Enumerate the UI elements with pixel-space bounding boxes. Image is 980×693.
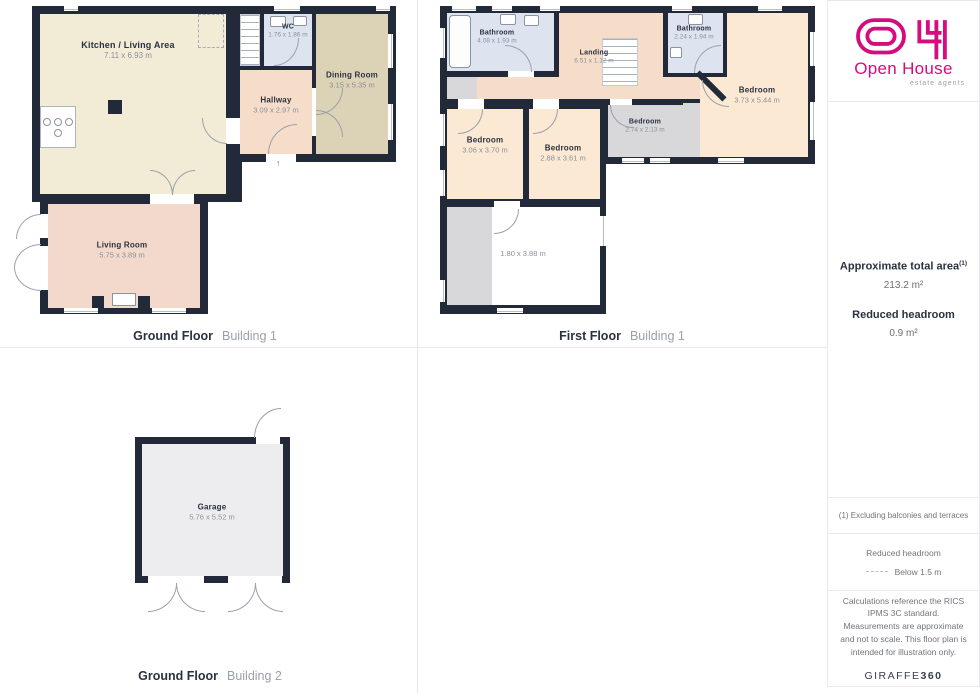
room-name: Bedroom <box>625 119 664 126</box>
room-name: Garage <box>189 503 234 512</box>
toilet-icon <box>524 15 539 26</box>
legend-label: Below 1.5 m <box>895 567 942 577</box>
room-dims: 2.24 x 1.94 m <box>674 34 713 41</box>
total-area-label: Approximate total area(1) <box>840 260 967 273</box>
room-label: 1.80 x 3.88 m <box>500 248 545 258</box>
room-label: Bedroom 2.88 x 3.61 m <box>540 144 585 163</box>
total-area-label-text: Approximate total area <box>840 261 959 273</box>
room-label: Bathroom 2.24 x 1.94 m <box>674 26 713 41</box>
room-dims: 4.08 x 1.93 m <box>477 38 516 45</box>
window <box>452 6 476 11</box>
floor-caption: Ground FloorBuilding 2 <box>138 669 282 683</box>
legend-box: Reduced headroom Below 1.5 m <box>827 533 980 591</box>
window <box>440 28 445 58</box>
window <box>540 6 560 11</box>
dashed-line-icon <box>866 571 888 572</box>
reduced-headroom-area <box>683 103 700 157</box>
room-name: Dining Room <box>326 71 378 80</box>
room-dims: 5.75 x 3.89 m <box>97 251 148 260</box>
giraffe360-credit: GIRAFFE360 <box>864 670 942 682</box>
room-name: Bedroom <box>462 136 507 145</box>
window <box>492 6 512 11</box>
room-label: Garage 5.76 x 5.52 m <box>189 503 234 522</box>
disclaimer-text: Calculations reference the RICS IPMS 3C … <box>840 595 967 659</box>
room-dims: 2.74 x 2.13 m <box>625 127 664 134</box>
floor-caption-name: First Floor <box>559 329 621 343</box>
door-swing-icon <box>176 583 205 612</box>
room-label: Kitchen / Living Area 7.11 x 6.93 m <box>81 40 174 60</box>
area-summary-box: Approximate total area(1) 213.2 m² Reduc… <box>827 101 980 498</box>
room-name: Kitchen / Living Area <box>81 40 174 50</box>
bathtub-icon <box>449 15 471 68</box>
brand-tagline: estate agents <box>910 80 965 87</box>
floorplan-sheet: ↑ Kitchen / Living Area 7.11 x 6.93 m WC… <box>0 0 980 693</box>
total-area-value: 213.2 m² <box>884 280 923 291</box>
legend-title: Reduced headroom <box>866 548 941 558</box>
room-label: Hallway 3.09 x 2.97 m <box>253 96 298 115</box>
room-name: Bedroom <box>540 144 585 153</box>
window <box>600 216 606 246</box>
door-opening <box>148 576 204 583</box>
room-label: Bedroom 3.06 x 3.70 m <box>462 136 507 155</box>
room-dims: 3.06 x 3.70 m <box>462 146 507 155</box>
floor-caption: First FloorBuilding 1 <box>559 329 685 343</box>
door-swing-icon <box>148 583 177 612</box>
brand-mark-icon <box>852 15 956 61</box>
window <box>718 158 744 163</box>
window <box>810 102 815 140</box>
room-dims: 7.11 x 6.93 m <box>81 51 174 60</box>
door-opening <box>494 201 520 207</box>
window <box>440 114 445 146</box>
door-swing-icon <box>228 583 256 612</box>
brand-logo-box: Open House estate agents <box>827 0 980 102</box>
window <box>672 6 692 11</box>
disclaimer-box: Calculations reference the RICS IPMS 3C … <box>827 590 980 687</box>
room-dims: 1.76 x 1.86 m <box>268 32 307 39</box>
room-label: Living Room 5.75 x 3.89 m <box>97 241 148 260</box>
credit-bold: 360 <box>920 670 942 682</box>
sink-icon <box>500 14 516 25</box>
toilet-icon <box>688 14 703 25</box>
room-label: Landing 6.51 x 1.12 m <box>574 50 613 65</box>
room-dims: 1.80 x 3.88 m <box>500 249 545 258</box>
room-name: Bedroom <box>734 86 779 95</box>
door-opening <box>256 437 280 444</box>
window <box>440 170 445 196</box>
room-dims: 6.51 x 1.12 m <box>574 58 613 65</box>
room-label: WC 1.76 x 1.86 m <box>268 24 307 39</box>
reduced-headroom-label: Reduced headroom <box>852 309 955 321</box>
room-label: Bedroom 3.73 x 5.44 m <box>734 86 779 105</box>
door-opening <box>228 576 282 583</box>
window <box>497 308 523 313</box>
floor-caption-name: Ground Floor <box>138 669 218 683</box>
room-name: Hallway <box>253 96 298 105</box>
window <box>758 6 782 11</box>
floor-caption-building: Building 2 <box>227 669 282 683</box>
credit-regular: GIRAFFE <box>864 670 920 682</box>
room-label: Bathroom 4.08 x 1.93 m <box>477 30 516 45</box>
total-area-note-ref: (1) <box>959 260 967 267</box>
room-name: WC <box>268 24 307 31</box>
room-name: Bathroom <box>674 26 713 33</box>
room-name: Landing <box>574 50 613 57</box>
brand-name: Open House <box>854 59 952 79</box>
room-label: Bedroom 2.74 x 2.13 m <box>625 119 664 134</box>
reduced-headroom-value: 0.9 m² <box>889 328 917 339</box>
window <box>650 158 670 163</box>
room-label: Dining Room 3.15 x 5.35 m <box>326 71 378 90</box>
legend-row: Below 1.5 m <box>866 567 942 577</box>
door-opening <box>533 99 559 109</box>
door-opening <box>458 99 484 109</box>
footnote-text: (1) Excluding balconies and terraces <box>839 511 968 520</box>
window <box>622 158 644 163</box>
room-dims: 3.73 x 5.44 m <box>734 96 779 105</box>
room-dims: 2.88 x 3.61 m <box>540 154 585 163</box>
sink-icon <box>670 47 682 58</box>
room-name: Bathroom <box>477 30 516 37</box>
room-dims: 3.15 x 5.35 m <box>326 81 378 90</box>
room-dims: 5.76 x 5.52 m <box>189 513 234 522</box>
door-swing-icon <box>254 408 281 438</box>
window <box>810 32 815 66</box>
window <box>440 280 445 302</box>
reduced-headroom-area <box>447 77 477 99</box>
floor-caption-building: Building 1 <box>630 329 685 343</box>
footnote-box: (1) Excluding balconies and terraces <box>827 497 980 534</box>
reduced-headroom-area <box>447 207 492 305</box>
room-dims: 3.09 x 2.97 m <box>253 106 298 115</box>
room-name: Living Room <box>97 241 148 250</box>
plan-ground-floor-building2: Garage 5.76 x 5.52 m Ground FloorBuildin… <box>0 347 417 693</box>
door-swing-icon <box>255 583 283 612</box>
